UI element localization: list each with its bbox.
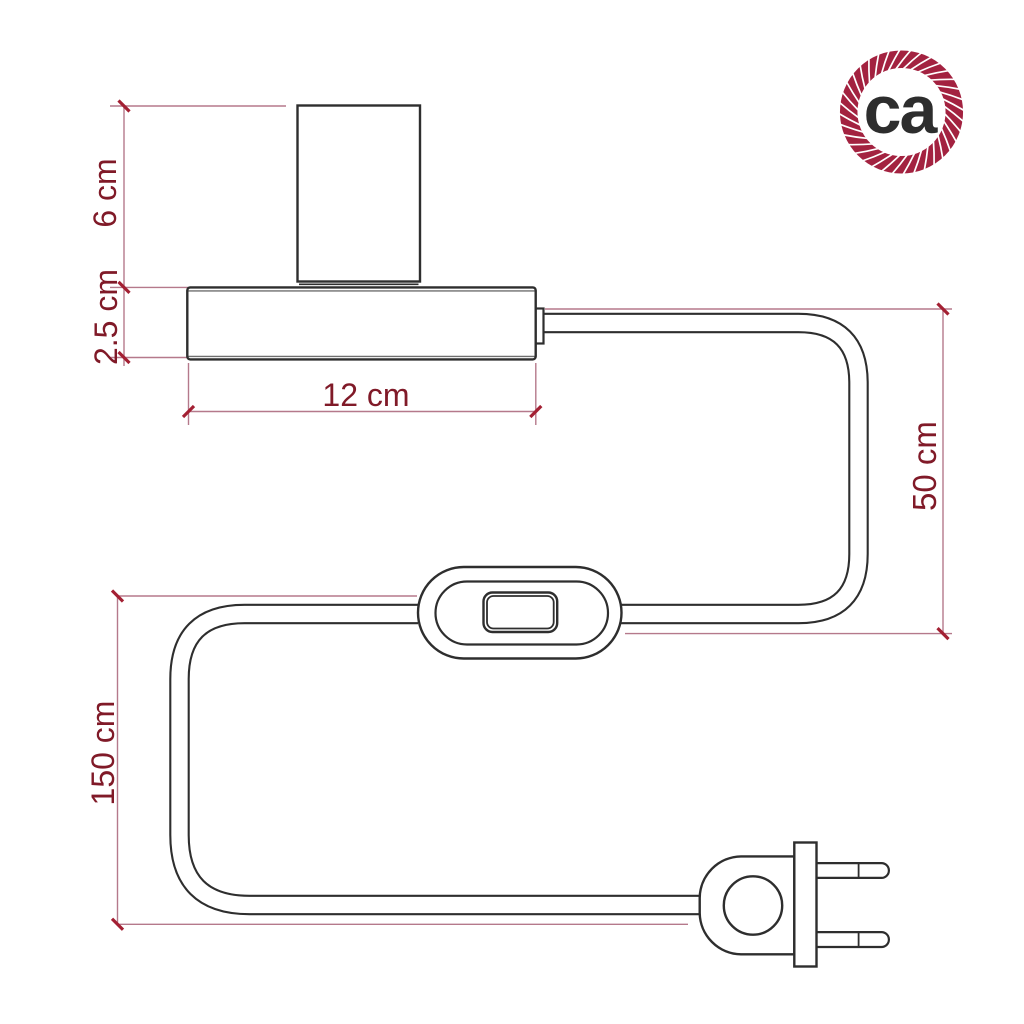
svg-text:12 cm: 12 cm — [322, 377, 409, 413]
svg-text:2.5 cm: 2.5 cm — [88, 269, 124, 365]
svg-text:ca: ca — [864, 72, 939, 148]
svg-text:150 cm: 150 cm — [85, 701, 121, 806]
svg-text:6 cm: 6 cm — [87, 158, 123, 227]
svg-text:50 cm: 50 cm — [906, 421, 943, 511]
